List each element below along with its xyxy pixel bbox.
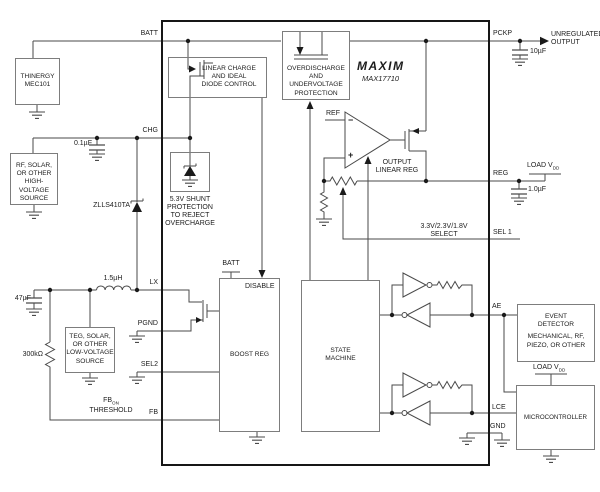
cap-label-47uf: 47µF xyxy=(2,295,31,303)
block-label: THINERGY xyxy=(16,73,59,81)
junction-dot xyxy=(135,288,139,292)
shunt-protection-caption: 5.3V SHUNT PROTECTION TO REJECT OVERCHAR… xyxy=(160,196,220,228)
load-vdd-label-reg: LOAD VDD xyxy=(527,162,559,172)
block-label: LOW-VOLTAGE xyxy=(66,349,114,357)
pin-label-lce: LCE xyxy=(492,404,506,412)
ground-symbol xyxy=(26,309,42,315)
output-linear-reg-label: OUTPUT LINEAR REG xyxy=(367,159,427,175)
schottky-diode-triangle xyxy=(132,202,142,212)
ground-symbol xyxy=(129,336,145,342)
ground-symbol xyxy=(29,112,45,118)
ground-symbol xyxy=(511,198,527,204)
voltage-select-label: 3.3V/2.3V/1.8V SELECT xyxy=(409,223,479,239)
junction-dot xyxy=(518,39,522,43)
pin-label-pckp: PCKP xyxy=(493,30,512,38)
res-label-300k: 300kΩ xyxy=(10,351,43,359)
arrowhead-unregulated-output xyxy=(540,37,549,45)
opamp-minus-input: − xyxy=(348,116,353,125)
disable-label: DISABLE xyxy=(245,283,275,291)
junction-dot xyxy=(95,136,99,140)
cap-label-10uf: 10µF xyxy=(530,48,546,56)
boost-batt-label: BATT xyxy=(211,260,251,268)
block-overdischarge-protection: OVERDISCHARGE AND UNDERVOLTAGE PROTECTIO… xyxy=(282,31,350,100)
pin-label-ae: AE xyxy=(492,303,501,311)
pin-label-chg: CHG xyxy=(120,127,158,135)
load-vdd-label-micro: LOAD VDD xyxy=(533,364,565,374)
pin-label-pgnd: PGND xyxy=(118,320,158,328)
unregulated-output-label: UNREGULATED OUTPUT xyxy=(551,31,600,47)
block-label: RF, SOLAR, xyxy=(11,162,57,170)
block-label: OVERDISCHARGE xyxy=(283,65,349,73)
block-label: MACHINE xyxy=(302,355,379,363)
block-label: DIODE CONTROL xyxy=(191,81,267,89)
block-state-machine: STATE MACHINE xyxy=(301,280,380,432)
diode-label: ZLLS410TA xyxy=(90,202,130,210)
junction-dot xyxy=(135,136,139,140)
block-label: STATE xyxy=(302,347,379,355)
microcontroller-label: MICROCONTROLLER xyxy=(517,414,594,422)
block-linear-charge: LINEAR CHARGE AND IDEAL DIODE CONTROL xyxy=(168,57,267,98)
boost-reg-label: BOOST REG xyxy=(220,351,279,359)
block-label: LINEAR CHARGE xyxy=(191,65,267,73)
opamp-plus-input: + xyxy=(348,151,353,160)
block-label: SOURCE xyxy=(66,358,114,366)
ground-symbol xyxy=(82,378,98,384)
junction-dot xyxy=(517,179,521,183)
ground-symbol xyxy=(89,154,105,160)
block-low-voltage-source: TEG, SOLAR, OR OTHER LOW-VOLTAGE SOURCE xyxy=(65,327,115,373)
maxim-logo: MAXIM xyxy=(357,59,405,73)
ground-symbol xyxy=(512,59,528,65)
part-number: MAX17710 xyxy=(362,74,399,83)
block-label: MEC101 xyxy=(16,81,59,89)
ground-symbol xyxy=(129,377,145,383)
block-event-detector: EVENT DETECTOR MECHANICAL, RF, PIEZO, OR… xyxy=(517,304,595,362)
block-label: EVENT xyxy=(518,313,594,321)
junction-dot xyxy=(88,288,92,292)
block-label: HIGH-VOLTAGE xyxy=(11,178,57,194)
junction-dot xyxy=(48,288,52,292)
block-label: DETECTOR xyxy=(518,321,594,329)
junction-dot xyxy=(502,313,506,317)
block-label: MECHANICAL, RF, xyxy=(518,333,594,341)
block-thinergy-battery: THINERGY MEC101 xyxy=(15,58,60,105)
block-label: OR OTHER xyxy=(11,170,57,178)
inductor-label: 1.5µH xyxy=(97,275,129,283)
pin-label-reg: REG xyxy=(493,170,508,178)
ground-symbol xyxy=(26,212,42,218)
block-high-voltage-source: RF, SOLAR, OR OTHER HIGH-VOLTAGE SOURCE xyxy=(10,153,58,205)
schottky-branch xyxy=(131,138,143,290)
block-label: PIEZO, OR OTHER xyxy=(518,342,594,350)
ref-label: REF xyxy=(326,110,340,118)
capacitor-symbol xyxy=(512,50,528,55)
block-label: AND UNDERVOLTAGE xyxy=(283,73,349,89)
block-label: PROTECTION xyxy=(283,90,349,98)
pin-label-batt: BATT xyxy=(120,30,158,38)
pin-label-gnd: GND xyxy=(490,423,506,431)
capacitor-symbol xyxy=(511,189,527,194)
block-microcontroller: MICROCONTROLLER xyxy=(516,385,595,450)
cap-label-1uf: 1.0µF xyxy=(528,186,546,194)
pin-label-sel2: SEL2 xyxy=(118,361,158,369)
ground-symbol xyxy=(494,440,510,446)
fbon-threshold-label: FBON THRESHOLD xyxy=(81,397,141,415)
block-boost-reg: DISABLE BOOST REG xyxy=(219,278,280,432)
cap-label-01uf: 0.1µF xyxy=(60,140,92,148)
block-label: AND IDEAL xyxy=(191,73,267,81)
pin-label-sel1: SEL 1 xyxy=(493,229,512,237)
block-label: SOURCE xyxy=(11,195,57,203)
block-label: OR OTHER xyxy=(66,341,114,349)
schematic-max17710: THINERGY MEC101 RF, SOLAR, OR OTHER HIGH… xyxy=(0,0,600,492)
block-shunt-protection xyxy=(170,152,210,192)
block-label: TEG, SOLAR, xyxy=(66,333,114,341)
ground-symbol xyxy=(543,456,559,462)
